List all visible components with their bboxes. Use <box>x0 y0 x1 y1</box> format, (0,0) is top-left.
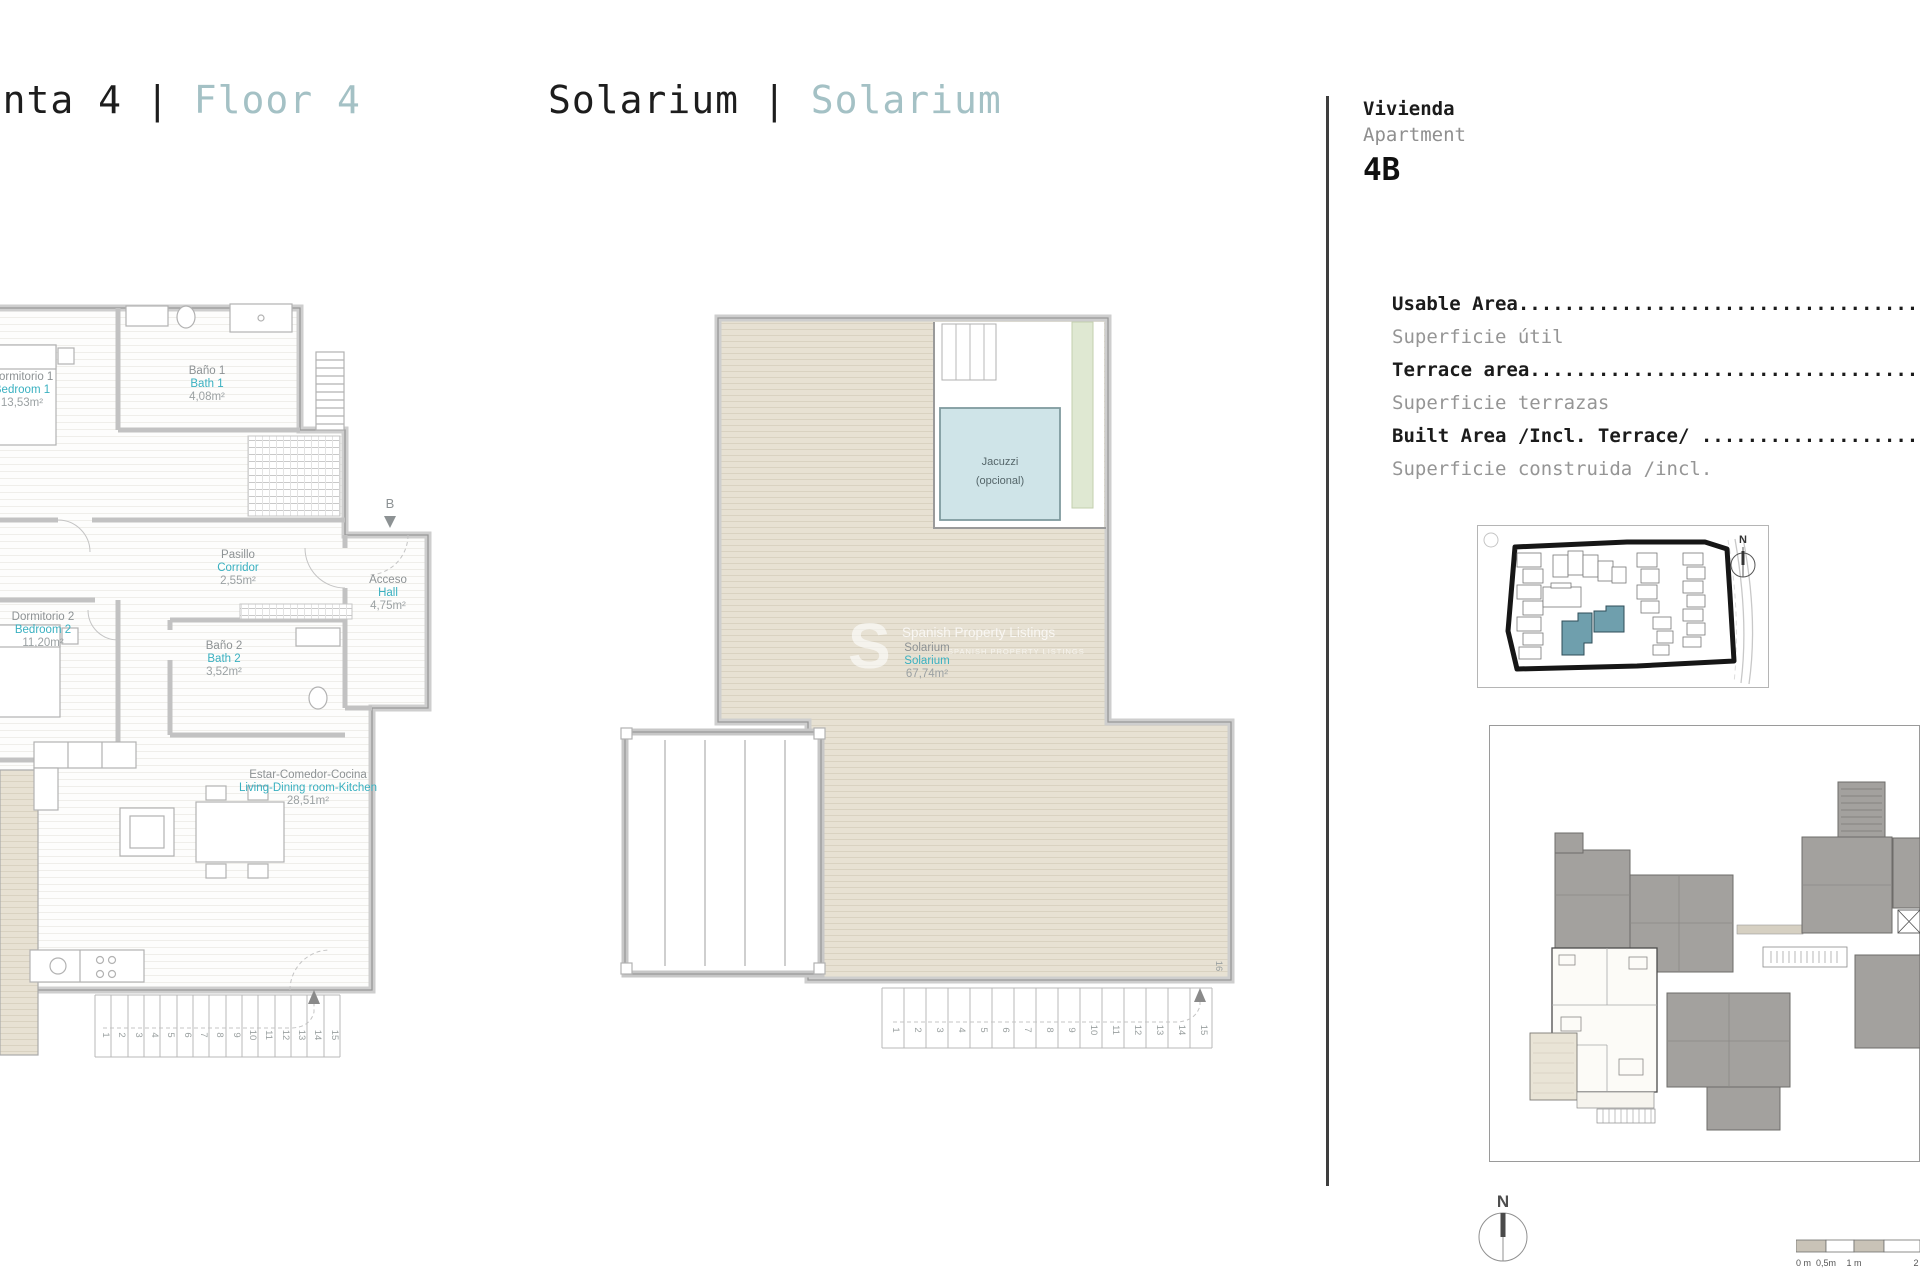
bath2-label-en: Bath 2 <box>207 653 240 665</box>
apartment-label: Apartment <box>1363 122 1466 148</box>
step-3: 3 <box>133 1032 144 1037</box>
north-label: N <box>1497 1192 1509 1211</box>
area-row-terrace: Terrace area............................… <box>1392 354 1920 420</box>
sol-step-5: 5 <box>978 1027 989 1032</box>
jacuzzi-label-1: Jacuzzi <box>982 456 1019 468</box>
hall-label-en: Hall <box>378 587 398 599</box>
grill-stairs <box>942 324 996 380</box>
step-2: 2 <box>116 1032 127 1037</box>
step-9: 9 <box>231 1032 242 1037</box>
step-7: 7 <box>198 1032 209 1037</box>
step-13: 13 <box>296 1030 307 1041</box>
scale-bar-segments <box>1796 1240 1920 1252</box>
bath1-label-en: Bath 1 <box>190 378 223 390</box>
scale-1: 1 m <box>1846 1258 1861 1268</box>
solarium-title-en: Solarium <box>811 78 1002 122</box>
sol-step-3: 3 <box>934 1027 945 1032</box>
solarium-title-sep: | <box>739 78 811 122</box>
sol-step-15: 15 <box>1198 1025 1209 1036</box>
section-marker-label: B <box>386 496 395 511</box>
solarium-title: Solarium | Solarium <box>548 78 1002 122</box>
step-5: 5 <box>165 1032 176 1037</box>
planter-strip <box>1072 322 1093 508</box>
area-row-usable: Usable Area.............................… <box>1392 288 1920 354</box>
left-title-es: Planta 4 <box>0 78 122 122</box>
left-plan-title: Planta 4 | Floor 4 <box>0 78 361 122</box>
bath1-label-es: Baño 1 <box>189 365 225 377</box>
floorplan-sheet: { "header": { "left": {"es": "Planta 4",… <box>0 0 1920 1280</box>
section-marker-arrow-icon <box>384 516 396 528</box>
stair-numbers: 1 2 3 4 5 6 7 8 9 10 11 12 13 14 15 <box>100 1030 340 1041</box>
apartment-id-block: Vivienda Apartment 4B <box>1363 96 1466 188</box>
jacuzzi-label-2: (opcional) <box>976 475 1024 487</box>
hall-label-es: Acceso <box>369 574 407 586</box>
bedroom1-label-es: Dormitorio 1 <box>0 371 53 383</box>
corridor-label-es: Pasillo <box>221 549 255 561</box>
step-4: 4 <box>149 1032 160 1037</box>
scale-bar: 0 m 0,5m 1 m 2 <box>1796 1236 1920 1272</box>
built-area-label: Built Area /Incl. Terrace/ .............… <box>1392 420 1920 453</box>
solarium-label-es: Solarium <box>904 642 949 654</box>
bath1-area: 4,08m² <box>189 391 225 403</box>
sol-step-13: 13 <box>1154 1025 1165 1036</box>
solarium-stair-numbers: 1 2 3 4 5 6 7 8 9 10 11 12 13 14 15 <box>890 1025 1209 1036</box>
solarium-title-es: Solarium <box>548 78 739 122</box>
living-label-es: Estar-Comedor-Cocina <box>249 769 367 781</box>
terrace-area-label: Terrace area............................… <box>1392 354 1920 387</box>
sol-step-10: 10 <box>1088 1025 1099 1036</box>
site-plan-map: N <box>1477 525 1769 688</box>
built-area-es: Superficie construida /incl. <box>1392 453 1920 486</box>
scale-2: 2 <box>1913 1258 1918 1268</box>
bedroom2-label-en: Bedroom 2 <box>15 624 71 636</box>
watermark-logo-icon: S <box>848 610 891 682</box>
bedroom1-area: 13,53m² <box>1 397 43 409</box>
watermark-line2: SPANISH PROPERTY LISTINGS <box>948 647 1085 656</box>
living-area: 28,51m² <box>287 795 329 807</box>
bedroom2-label-es: Dormitorio 2 <box>12 611 75 623</box>
step-15: 15 <box>329 1030 340 1041</box>
bath2-label-es: Baño 2 <box>206 640 242 652</box>
sol-step-1: 1 <box>890 1027 901 1032</box>
terrace-strip <box>0 770 38 1055</box>
sol-step-7: 7 <box>1022 1027 1033 1032</box>
living-label-en: Living-Dining room-Kitchen <box>239 782 377 794</box>
usable-area-es: Superficie útil <box>1392 321 1920 354</box>
sol-step-11: 11 <box>1110 1025 1121 1035</box>
sol-step-12: 12 <box>1132 1025 1143 1036</box>
pergola <box>621 728 825 974</box>
jacuzzi-area: Jacuzzi (opcional) <box>934 322 1106 528</box>
sol-step-4: 4 <box>956 1027 967 1032</box>
hall-area: 4,75m² <box>370 600 406 612</box>
solarium-label-en: Solarium <box>904 655 949 667</box>
sol-step-9: 9 <box>1066 1027 1077 1032</box>
sol-step-2: 2 <box>912 1027 923 1032</box>
solarium-room-label: Solarium Solarium 67,74m² <box>904 642 949 680</box>
panel-divider <box>1326 96 1329 1186</box>
stair-core <box>1763 947 1847 967</box>
step-1: 1 <box>100 1032 111 1037</box>
floor-plan-apartment: 1 2 3 4 5 6 7 8 9 10 11 12 13 14 15 B Do… <box>0 290 470 1070</box>
usable-area-label: Usable Area.............................… <box>1392 288 1920 321</box>
sol-step-8: 8 <box>1044 1027 1055 1032</box>
section-marker-b: B <box>384 496 396 528</box>
vivienda-label: Vivienda <box>1363 96 1466 122</box>
watermark-line1: Spanish Property Listings <box>902 625 1055 640</box>
corridor-area: 2,55m² <box>220 575 256 587</box>
step-10: 10 <box>247 1030 258 1041</box>
site-compass-label: N <box>1739 534 1747 546</box>
bedroom1-label-en: Bedroom 1 <box>0 384 50 396</box>
area-row-built: Built Area /Incl. Terrace/ .............… <box>1392 420 1920 486</box>
step-16: 16 <box>1213 961 1224 972</box>
bedroom2-area: 11,20m² <box>22 637 64 649</box>
sol-step-6: 6 <box>1000 1027 1011 1032</box>
sol-step-14: 14 <box>1176 1025 1187 1036</box>
corridor-label-en: Corridor <box>217 562 259 574</box>
terrace-area-es: Superficie terrazas <box>1392 387 1920 420</box>
apartment-number: 4B <box>1363 152 1466 188</box>
solarium-stairs-up-arrow <box>1194 988 1206 1002</box>
solarium-area: 67,74m² <box>906 668 948 680</box>
step-14: 14 <box>312 1030 323 1041</box>
north-compass: N <box>1478 1185 1542 1277</box>
step-8: 8 <box>214 1032 225 1037</box>
left-title-sep: | <box>122 78 194 122</box>
scale-0: 0 m <box>1796 1258 1811 1268</box>
left-title-en: Floor 4 <box>194 78 361 122</box>
area-table: Usable Area.............................… <box>1392 288 1920 486</box>
step-6: 6 <box>182 1032 193 1037</box>
exterior-stairs: 1 2 3 4 5 6 7 8 9 10 11 12 13 14 15 <box>95 990 340 1057</box>
step-11: 11 <box>263 1030 274 1040</box>
solarium-plan: Jacuzzi (opcional) S Spanish Property Li… <box>580 300 1260 1080</box>
step-12: 12 <box>280 1030 291 1041</box>
bath2-area: 3,52m² <box>206 666 242 678</box>
key-plan <box>1489 725 1920 1162</box>
scale-05: 0,5m <box>1816 1258 1836 1268</box>
